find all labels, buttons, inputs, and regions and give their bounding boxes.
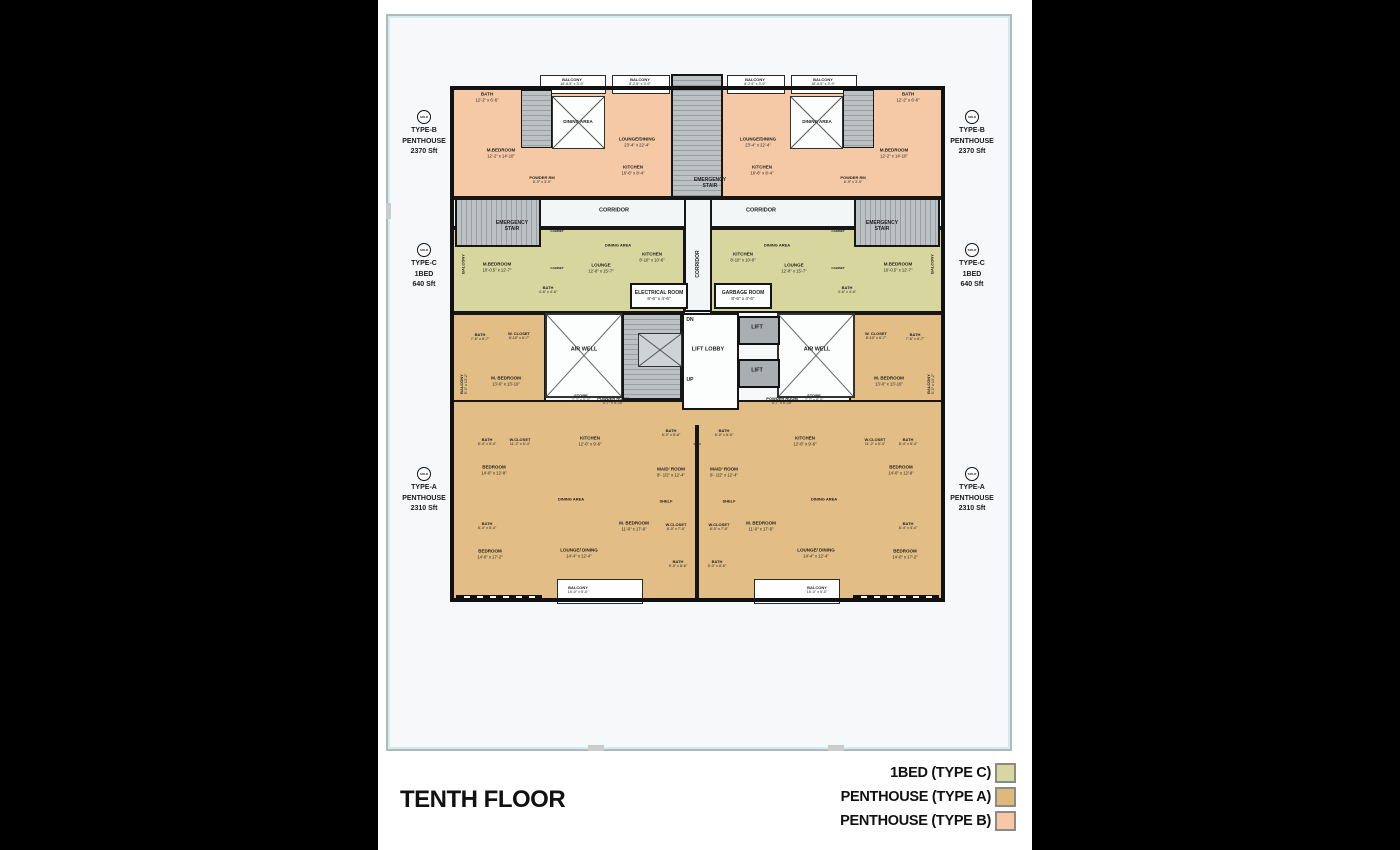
balcony — [612, 75, 670, 94]
air-well-right — [777, 313, 855, 398]
penthouse-stair-left — [521, 90, 552, 148]
unit-label-right-type-a: SOLD TYPE-A PENTHOUSE 2310 Sft — [943, 467, 1001, 515]
legend: 1BED (TYPE C) PENTHOUSE (TYPE A) PENTHOU… — [820, 762, 1016, 834]
unit-type: TYPE-B — [395, 126, 453, 137]
legend-swatch-type-b — [995, 811, 1016, 831]
air-well-left — [545, 313, 623, 398]
emergency-stair-right — [854, 198, 940, 247]
lift-lobby — [682, 313, 739, 410]
unit-type: TYPE-A — [943, 483, 1001, 494]
balcony — [754, 579, 840, 604]
party-wall — [695, 425, 699, 601]
unit-label-right-type-c: SOLD TYPE-C 1BED 640 Sft — [943, 243, 1001, 291]
unit-area: 2370 Sft — [395, 147, 453, 158]
legend-swatch-type-c — [995, 763, 1016, 783]
unit-type: TYPE-C — [943, 259, 1001, 270]
unit-type: TYPE-B — [943, 126, 1001, 137]
sold-badge: SOLD — [965, 467, 979, 481]
unit-name: 1BED — [395, 270, 453, 281]
window-strip — [456, 595, 542, 602]
sold-badge: SOLD — [417, 467, 431, 481]
legend-label: PENTHOUSE (TYPE B) — [840, 813, 991, 829]
unit-label-right-type-b: SOLD TYPE-B PENTHOUSE 2370 Sft — [943, 110, 1001, 158]
legend-label: 1BED (TYPE C) — [890, 765, 991, 781]
legend-row: PENTHOUSE (TYPE B) — [820, 810, 1016, 831]
unit-type: TYPE-A — [395, 483, 453, 494]
window-strip — [853, 595, 939, 602]
legend-label: PENTHOUSE (TYPE A) — [841, 789, 991, 805]
unit-name: PENTHOUSE — [943, 494, 1001, 505]
unit-label-left-type-b: SOLD TYPE-B PENTHOUSE 2370 Sft — [395, 110, 453, 158]
penthouse-stair-right — [843, 90, 874, 148]
balcony — [727, 75, 785, 94]
dining-void-left — [552, 96, 605, 149]
screenshot-root: { "page": { "title": "TENTH FLOOR" }, "c… — [0, 0, 1400, 850]
legend-row: 1BED (TYPE C) — [820, 762, 1016, 783]
frame-tick — [828, 745, 844, 751]
unit-name: PENTHOUSE — [943, 137, 1001, 148]
unit-area: 640 Sft — [395, 280, 453, 291]
emergency-stair-center — [671, 74, 723, 198]
zone-type-a-upper-left — [452, 313, 546, 410]
page-title: TENTH FLOOR — [400, 786, 565, 814]
sold-badge: SOLD — [417, 110, 431, 124]
emergency-stair-left — [455, 198, 541, 247]
sold-badge: SOLD — [965, 110, 979, 124]
unit-name: PENTHOUSE — [395, 494, 453, 505]
sold-badge: SOLD — [965, 243, 979, 257]
unit-area: 2310 Sft — [395, 504, 453, 515]
sold-badge: SOLD — [417, 243, 431, 257]
balcony — [557, 579, 643, 604]
central-stair-void — [638, 333, 682, 367]
unit-type: TYPE-C — [395, 259, 453, 270]
unit-area: 2310 Sft — [943, 504, 1001, 515]
unit-area: 640 Sft — [943, 280, 1001, 291]
zone-type-a-upper-right — [849, 313, 943, 410]
garbage-room — [714, 283, 772, 309]
electrical-room — [630, 283, 688, 309]
frame-tick — [588, 745, 604, 751]
legend-swatch-type-a — [995, 787, 1016, 807]
unit-name: PENTHOUSE — [395, 137, 453, 148]
lift-shaft — [738, 359, 780, 388]
unit-name: 1BED — [943, 270, 1001, 281]
unit-area: 2370 Sft — [943, 147, 1001, 158]
lift-shaft — [738, 316, 780, 345]
dining-void-right — [790, 96, 843, 149]
corridor-vertical — [684, 198, 712, 312]
frame-tick — [386, 203, 391, 219]
unit-label-left-type-a: SOLD TYPE-A PENTHOUSE 2310 Sft — [395, 467, 453, 515]
unit-label-left-type-c: SOLD TYPE-C 1BED 640 Sft — [395, 243, 453, 291]
legend-row: PENTHOUSE (TYPE A) — [820, 786, 1016, 807]
